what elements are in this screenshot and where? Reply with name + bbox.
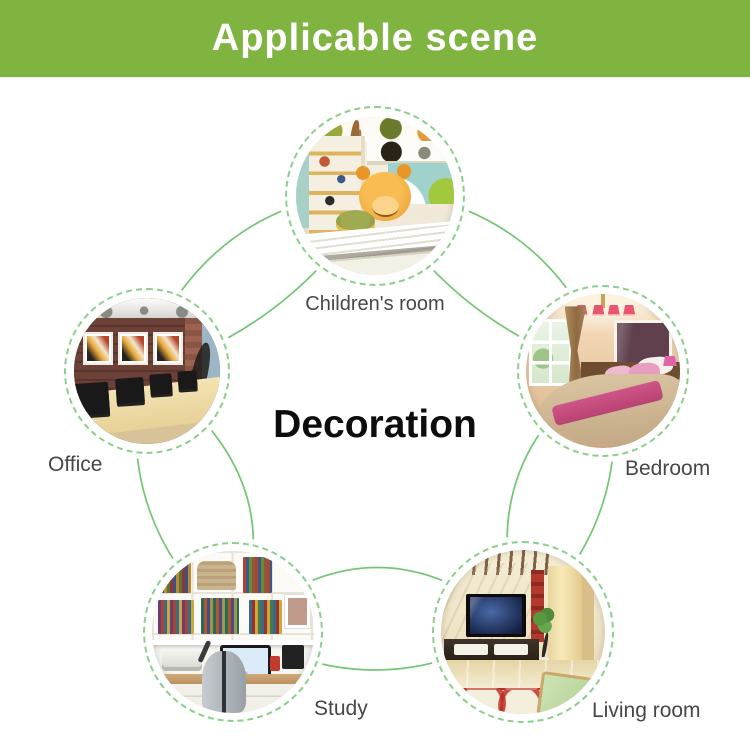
column-edge (582, 566, 593, 659)
drawer-box (494, 644, 528, 655)
printer (162, 650, 203, 671)
red-cup (270, 656, 280, 671)
photo-frame (285, 595, 310, 629)
pink-lamp (663, 356, 677, 367)
page: { "header": { "title": "Applicable scene… (0, 0, 750, 750)
wall-picture (83, 332, 113, 365)
scene-circle-childrens-room (280, 101, 470, 291)
scene-label-office: Office (48, 453, 102, 477)
books (243, 557, 272, 593)
second-monitor (282, 645, 305, 669)
top-shelf (367, 141, 454, 166)
scene-photo-bedroom (526, 294, 680, 448)
books (249, 600, 281, 634)
plush-muzzle (372, 196, 399, 217)
monitor (74, 381, 110, 416)
monitor (149, 373, 172, 395)
scene-circle-study (138, 537, 328, 727)
office-chair (202, 651, 246, 713)
plant (533, 607, 556, 635)
wicker-basket (197, 561, 236, 590)
tv (466, 594, 527, 637)
monitor (115, 377, 144, 404)
scene-label-bedroom: Bedroom (625, 457, 710, 481)
drawer-box (454, 644, 488, 655)
books (158, 559, 190, 593)
scene-label-childrens-room: Children's room (305, 293, 444, 316)
scene-label-living-room: Living room (592, 699, 701, 723)
floor (526, 428, 572, 448)
books (158, 600, 194, 634)
wall-picture (118, 332, 148, 365)
tv-bench (444, 639, 539, 660)
center-title: Decoration (273, 403, 477, 447)
scene-circle-bedroom (512, 280, 694, 462)
monitor (177, 370, 197, 389)
books (201, 598, 240, 634)
scene-photo-childrens-room (296, 117, 454, 275)
scene-photo-study (152, 551, 314, 713)
window (529, 319, 572, 387)
dark-floor (152, 684, 171, 713)
scene-label-study: Study (314, 697, 368, 721)
scene-circle-office (59, 283, 235, 459)
scene-circle-living-room (427, 536, 619, 728)
wall-picture (153, 332, 183, 365)
scene-photo-office (74, 298, 220, 444)
scene-photo-living-room (441, 550, 605, 714)
